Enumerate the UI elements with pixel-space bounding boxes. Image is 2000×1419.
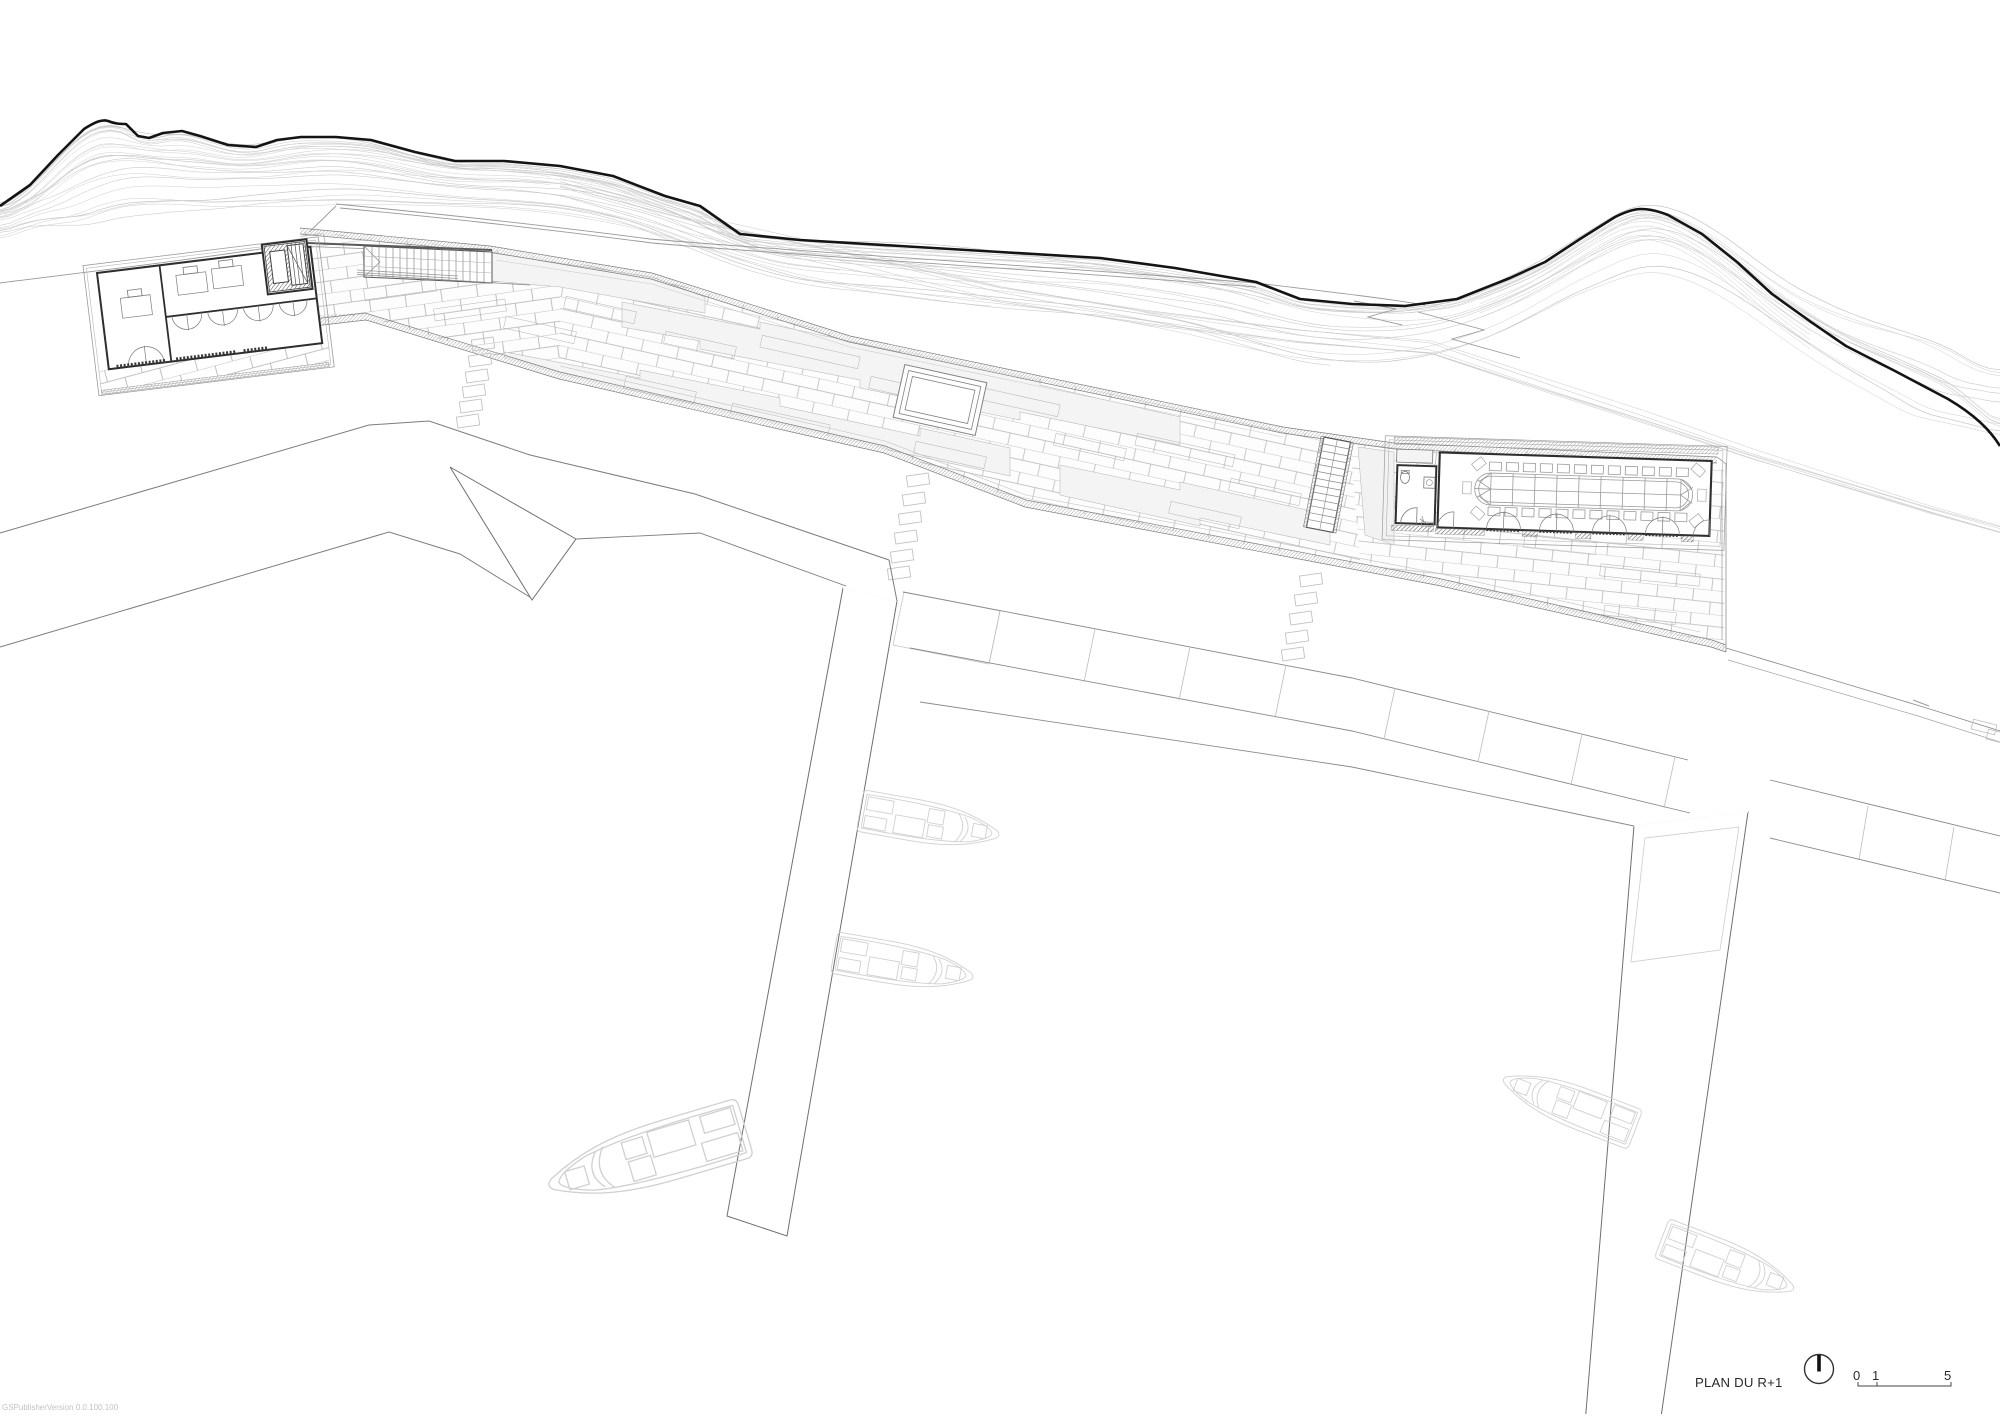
svg-text:0: 0	[1853, 1368, 1860, 1383]
svg-text:PLAN DU R+1: PLAN DU R+1	[1695, 1375, 1783, 1390]
svg-text:5: 5	[1944, 1368, 1951, 1383]
svg-text:GSPublisherVersion 0.0.100.100: GSPublisherVersion 0.0.100.100	[2, 1403, 119, 1412]
svg-text:1: 1	[1872, 1368, 1879, 1383]
